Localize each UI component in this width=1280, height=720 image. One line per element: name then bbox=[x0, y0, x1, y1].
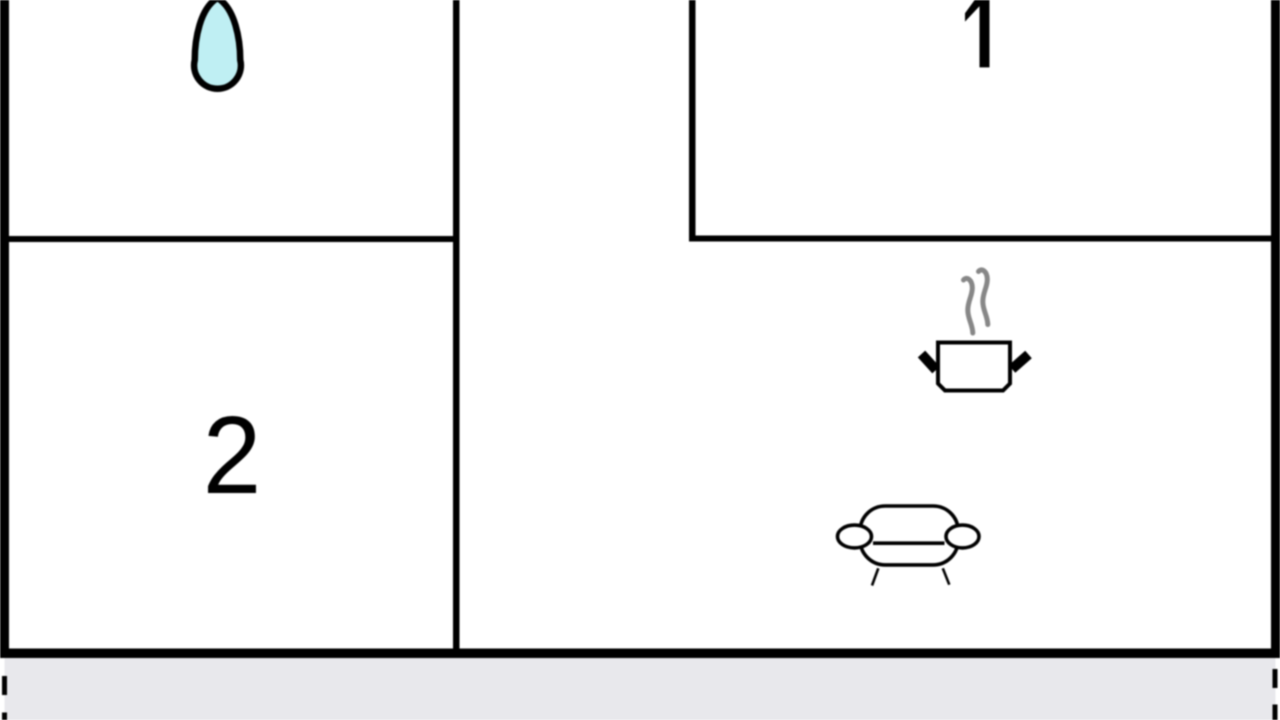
svg-text:2: 2 bbox=[203, 394, 262, 517]
